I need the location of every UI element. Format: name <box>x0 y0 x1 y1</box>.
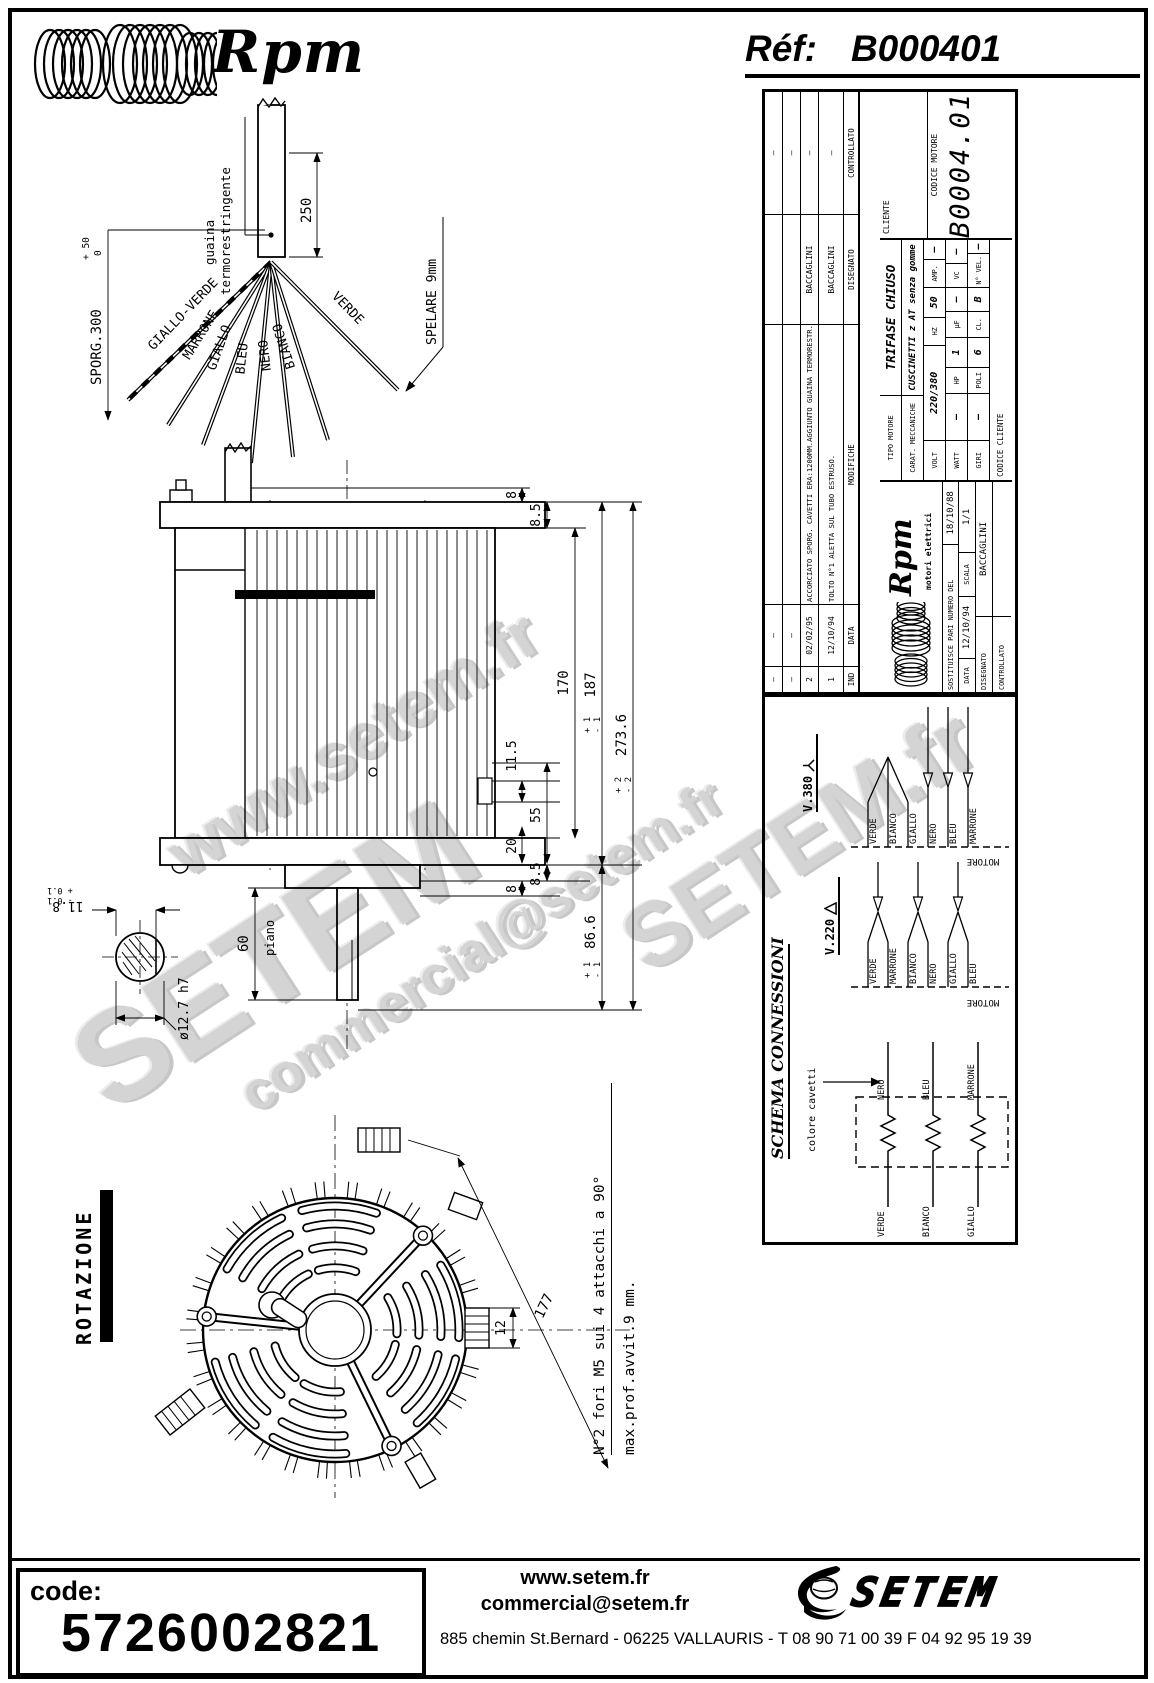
controllato-label: CONTROLLATO <box>993 616 1011 692</box>
wire-label: NERO <box>256 339 275 372</box>
rev-cell <box>765 324 783 604</box>
dim-sporg-tol-plus: + 50 <box>81 237 92 260</box>
v220-wire-label: BIANCO <box>909 953 919 984</box>
disegnato-value: BACCAGLINI <box>976 482 992 616</box>
tb-logo-sub: motori elettrici <box>924 513 933 590</box>
poli-label: POLI <box>968 367 989 393</box>
winding-diagram: NERO BLEU MARRONE VERDE BIANCO GIALLO <box>823 1042 1008 1237</box>
dim-20: 20 <box>505 838 520 854</box>
carat-label: CARAT. MECCANICHE <box>902 395 923 480</box>
rev-cell: – <box>783 666 801 692</box>
rev-cell: BACCAGLINI <box>801 214 819 324</box>
spelare-note: SPELARE 9mm <box>425 259 440 345</box>
rpm-coils-icon-small <box>891 602 931 688</box>
vc-label: VC <box>946 263 967 287</box>
schema-connessioni-block: SCHEMA CONNESSIONI V.380 V.220 colore ca… <box>762 695 1018 1245</box>
rpm-coils-icon <box>32 22 217 106</box>
rev-cell: – <box>783 92 801 214</box>
fan-note-2: max.prof.avvit.9 mm. <box>622 1083 638 1455</box>
code-box: code: 5726002821 <box>16 1568 426 1677</box>
rev-cell: ACCORCIATO SPORG. CAVETTI ERA:1200MM.AGG… <box>801 324 819 604</box>
shaft <box>337 888 358 1000</box>
sostituisce-value: 18/10/88 <box>943 482 958 544</box>
tipo-value: TRIFASE CHIUSO <box>880 240 901 395</box>
amp-value: – <box>924 240 945 259</box>
dim-60: 60 <box>236 935 252 952</box>
rev-header: IND <box>844 666 860 692</box>
dim-187: 187 <box>583 672 599 697</box>
volt-value: 220/380 <box>924 345 945 440</box>
rev-cell: 2 <box>801 666 819 692</box>
vc-value: – <box>946 240 967 263</box>
footer-divider <box>8 1558 1140 1561</box>
footer-contacts: www.setem.fr commercial@setem.fr <box>430 1565 740 1617</box>
rev-cell: 02/02/95 <box>801 604 819 666</box>
controllato-value <box>993 482 1011 616</box>
winding-label: BLEU <box>922 1080 932 1100</box>
cl-value: B <box>968 287 989 311</box>
tb-logo-brand: Rpm <box>884 518 919 596</box>
titleblock-codes: CLIENTE CODICE MOTORE B0004.01 <box>880 92 1012 238</box>
hz-label: HZ <box>924 317 945 345</box>
scala-label: SCALA <box>959 552 975 596</box>
v380-wire-label: MARRONE <box>969 808 979 844</box>
watt-value: – <box>946 393 967 440</box>
winding-label: BIANCO <box>922 1206 932 1237</box>
winding-label: GIALLO <box>967 1206 977 1237</box>
rev-header: DATA <box>844 604 860 666</box>
dim-12: 12 <box>494 1320 509 1336</box>
rev-cell: – <box>783 604 801 666</box>
sleeve-label-2: termorestringente <box>218 167 233 295</box>
setem-swirl-icon <box>798 1566 846 1620</box>
rev-cell: – <box>801 92 819 214</box>
v220-wire-label: NERO <box>929 964 939 984</box>
footer-email: commercial@setem.fr <box>430 1591 740 1617</box>
winding-label: VERDE <box>877 1211 887 1237</box>
revision-table: – – – – – – 2 02/02/95 ACCORCIATO SPORG.… <box>765 92 880 692</box>
dim-sporg: SPORG.300 <box>89 309 105 385</box>
reference-block: Réf: B000401 <box>745 28 1140 78</box>
motor-side-view: 11.8 + 0.1 - 0.1 ø12.7 h7 60 piano <box>30 440 690 1080</box>
drawing-sheet: Rpm Réf: B000401 www.setem.fr SETEM comm… <box>0 0 1154 1683</box>
v380-diagram: VERDE BIANCO GIALLO NERO BLEU MARRONE MO… <box>851 707 1009 866</box>
rpm-logo-text: Rpm <box>212 18 365 86</box>
nvel-value: – <box>968 240 989 253</box>
nvel-label: N° VEL. <box>968 253 989 287</box>
rev-cell: – <box>765 666 783 692</box>
dim-8-bot: 8 <box>505 885 520 893</box>
wire-fan-diagram: guaina termorestringente 250 GIALLO-VERD… <box>40 95 470 485</box>
carat-value: CUSCINETTI z AT senza gomme <box>902 240 923 395</box>
dim-118-tp: + 0.1 <box>47 885 73 895</box>
dim-85-top: 8.5 <box>529 503 544 526</box>
rev-cell: 12/10/94 <box>819 604 844 666</box>
dim-2736-tm: - 2 <box>624 777 634 793</box>
codice-cliente-label: CODICE CLIENTE <box>990 240 1011 480</box>
rev-cell <box>765 214 783 324</box>
wire-label: BLEU <box>233 342 251 375</box>
data-label: DATA <box>959 658 975 692</box>
footer-site: www.setem.fr <box>430 1565 740 1591</box>
disegnato-label: DISEGNATO <box>976 616 992 692</box>
rotazione-bar <box>100 1190 113 1342</box>
dim-85-bot: 8.5 <box>529 862 544 885</box>
dim-170: 170 <box>556 670 572 695</box>
scala-value: 1/1 <box>959 482 975 552</box>
v380-wire-label: BIANCO <box>889 813 899 844</box>
ref-value: B000401 <box>851 28 1001 70</box>
dim-sporg-tol-minus: 0 <box>93 250 104 256</box>
rev-header: MODIFICHE <box>844 324 860 604</box>
rev-cell: BACCAGLINI <box>819 214 844 324</box>
winding-label: MARRONE <box>967 1064 977 1100</box>
v380-wire-label: GIALLO <box>909 813 919 844</box>
hp-label: HP <box>946 367 967 393</box>
sostituisce-label: SOSTITUISCE PARI NUMERO DEL <box>943 544 958 692</box>
dim-866-tm: - 1 <box>593 962 603 978</box>
dim-187-tm: - 1 <box>593 717 603 733</box>
uf-value: – <box>946 287 967 311</box>
v220-wire-label: MARRONE <box>889 948 899 984</box>
shaft-section-detail <box>102 920 178 994</box>
cl-label: CL. <box>968 311 989 337</box>
code-value: 5726002821 <box>20 1602 422 1664</box>
rotazione-label: ROTAZIONE <box>72 1155 96 1345</box>
rev-cell <box>783 214 801 324</box>
wire-label: BIANCO <box>270 321 299 370</box>
dim-115: 11.5 <box>505 740 520 771</box>
dim-8-top: 8 <box>505 491 520 499</box>
dim-866-tp: + 1 <box>583 962 593 978</box>
amp-label: AMP. <box>924 259 945 287</box>
rev-cell: TOLTO N°1 ALETTA SUL TUBO ESTRUSO. <box>819 324 844 604</box>
v380-wire-label: VERDE <box>869 818 879 844</box>
dim-118-tm: - 0.1 <box>47 895 73 905</box>
title-block: – – – – – – 2 02/02/95 ACCORCIATO SPORG.… <box>762 89 1018 695</box>
uf-label: µF <box>946 311 967 337</box>
v380-wire-label: BLEU <box>949 824 959 844</box>
hz-value: 50 <box>924 287 945 317</box>
dim-866: 86.6 <box>583 915 599 949</box>
rev-header: CONTROLLATO <box>844 92 860 214</box>
titleblock-admin: Rpm motori elettrici SOSTITUISCE PARI NU… <box>880 480 1012 692</box>
wire-label: VERDE <box>329 289 367 328</box>
dim-2736-tp: + 2 <box>614 777 624 793</box>
dim-177: 177 <box>532 1291 557 1321</box>
cliente-label: CLIENTE <box>880 92 928 238</box>
poli-value: 6 <box>968 337 989 367</box>
giri-label: GIRI <box>968 440 989 480</box>
dim-shaft: ø12.7 h7 <box>177 977 192 1040</box>
setem-logo: SETEM <box>790 1562 1060 1624</box>
giri-value: – <box>968 393 989 440</box>
nameplate-slot <box>235 590 375 599</box>
rev-cell <box>783 324 801 604</box>
schema-wiring: VERDE BIANCO GIALLO NERO BLEU MARRONE MO… <box>765 697 1015 1242</box>
dim-187-tp: + 1 <box>583 717 593 733</box>
dim-250: 250 <box>299 198 315 223</box>
piano-label: piano <box>263 920 277 956</box>
hp-value: 1 <box>946 337 967 367</box>
codice-motore-label: CODICE MOTORE <box>928 92 939 238</box>
rev-cell: 1 <box>819 666 844 692</box>
rev-cell: – <box>819 92 844 214</box>
v220-wire-label: VERDE <box>869 958 879 984</box>
codice-motore-value: B0004.01 <box>939 92 976 238</box>
v380-wire-label: NERO <box>929 824 939 844</box>
sleeve-label-1: guaina <box>202 220 217 265</box>
titleblock-specs: TIPO MOTORE TRIFASE CHIUSO CARAT. MECCAN… <box>880 238 1012 480</box>
motore-label: MOTORE <box>967 997 1000 1007</box>
rev-cell: – <box>765 92 783 214</box>
v220-wire-label: GIALLO <box>949 953 959 984</box>
volt-label: VOLT <box>924 440 945 480</box>
rev-cell: – <box>765 604 783 666</box>
dim-55: 55 <box>529 807 544 823</box>
v220-diagram: VERDE MARRONE BIANCO NERO GIALLO BLEU MO… <box>851 862 1009 1007</box>
data-value: 12/10/94 <box>959 596 975 658</box>
v220-wire-label: BLEU <box>969 964 979 984</box>
rev-header: DISEGNATO <box>844 214 860 324</box>
fan-note-1: N°2 fori M5 sui 4 attacchi a 90° <box>592 1083 612 1455</box>
watt-label: WATT <box>946 440 967 480</box>
tipo-label: TIPO MOTORE <box>880 395 901 480</box>
setem-logo-text: SETEM <box>848 1569 1002 1616</box>
footer-address: 885 chemin St.Bernard - 06225 VALLAURIS … <box>440 1630 1060 1649</box>
ref-label: Réf: <box>745 28 817 70</box>
dim-2736: 273.6 <box>614 714 630 756</box>
motore-label: MOTORE <box>967 856 1000 866</box>
